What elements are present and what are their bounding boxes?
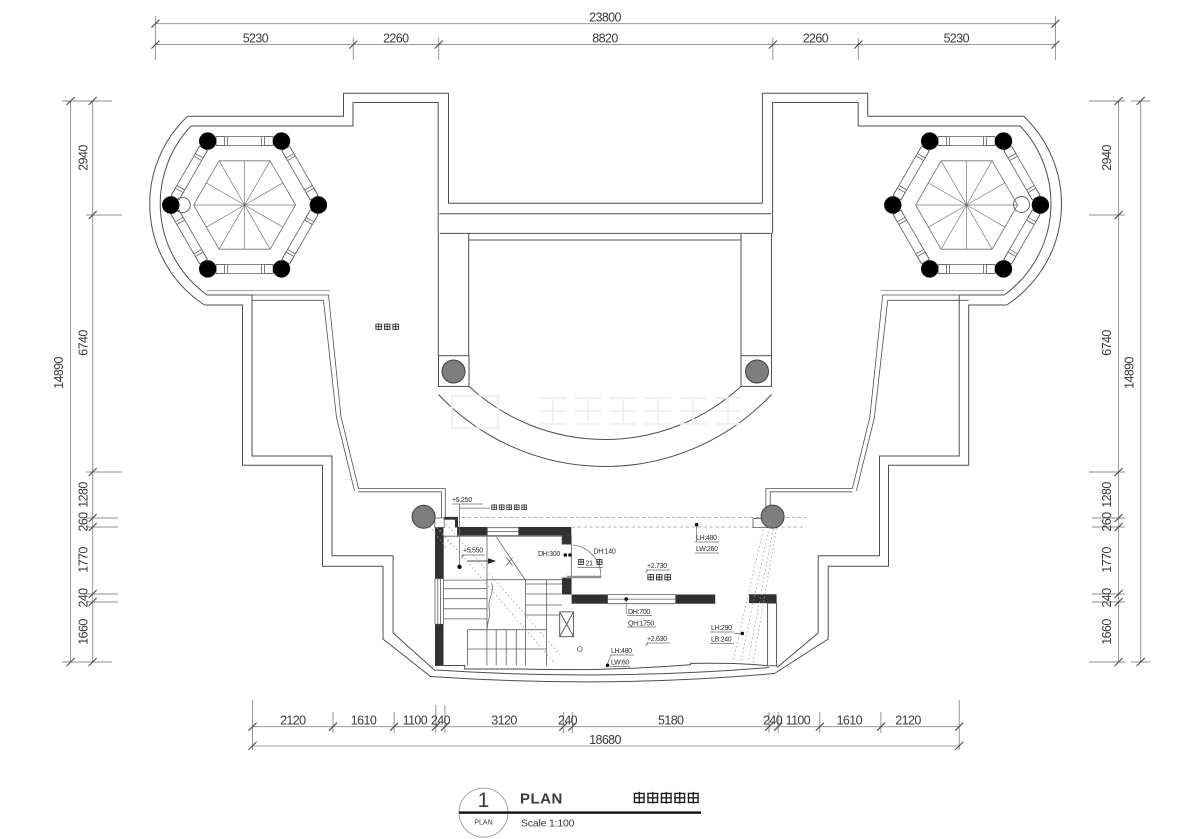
svg-text:1: 1 xyxy=(478,789,490,812)
svg-text:2120: 2120 xyxy=(280,713,306,727)
svg-text:DH:700: DH:700 xyxy=(628,609,650,616)
svg-text:PLAN: PLAN xyxy=(520,791,563,808)
svg-text:23800: 23800 xyxy=(589,11,621,25)
svg-text:240: 240 xyxy=(763,713,783,727)
svg-text:6740: 6740 xyxy=(77,330,91,356)
svg-text:LH:480: LH:480 xyxy=(696,535,717,542)
svg-text:+5.250: +5.250 xyxy=(452,497,472,504)
svg-text:1770: 1770 xyxy=(1100,547,1114,573)
svg-text:240: 240 xyxy=(558,713,578,727)
svg-text:240: 240 xyxy=(431,713,451,727)
svg-text:5230: 5230 xyxy=(243,32,269,46)
svg-text:LH:480: LH:480 xyxy=(611,648,632,655)
svg-text:21: 21 xyxy=(586,561,594,568)
svg-text:2940: 2940 xyxy=(1100,145,1114,171)
svg-text:8820: 8820 xyxy=(592,32,618,46)
svg-text:LB:240: LB:240 xyxy=(711,637,732,644)
svg-text:2260: 2260 xyxy=(383,32,409,46)
svg-text:1280: 1280 xyxy=(1100,482,1114,508)
svg-text:1100: 1100 xyxy=(786,713,811,727)
svg-text:1100: 1100 xyxy=(403,713,428,727)
svg-text:LH:290: LH:290 xyxy=(711,625,732,632)
svg-text:5230: 5230 xyxy=(944,32,970,46)
svg-text:2260: 2260 xyxy=(803,32,829,46)
svg-text:2940: 2940 xyxy=(77,145,91,171)
svg-text:240: 240 xyxy=(77,588,91,608)
svg-text:Scale 1:100: Scale 1:100 xyxy=(521,818,575,830)
svg-text:1770: 1770 xyxy=(77,547,91,573)
svg-text:PLAN: PLAN xyxy=(474,820,492,827)
svg-text:+2.730: +2.730 xyxy=(647,563,667,570)
svg-text:14890: 14890 xyxy=(1123,356,1137,388)
svg-text:6740: 6740 xyxy=(1100,330,1114,356)
svg-text:DH:140: DH:140 xyxy=(594,549,616,556)
svg-text:+5.550: +5.550 xyxy=(463,548,483,555)
svg-text:LW:260: LW:260 xyxy=(696,546,718,553)
svg-text:260: 260 xyxy=(1100,512,1114,532)
svg-text:1660: 1660 xyxy=(77,619,91,645)
svg-text:1610: 1610 xyxy=(351,713,377,727)
svg-text:260: 260 xyxy=(77,512,91,532)
svg-text:1660: 1660 xyxy=(1100,619,1114,645)
svg-text:240: 240 xyxy=(1100,588,1114,608)
svg-text:1280: 1280 xyxy=(77,482,91,508)
svg-text:3120: 3120 xyxy=(491,713,517,727)
svg-text:+2.630: +2.630 xyxy=(647,636,667,643)
svg-text:14890: 14890 xyxy=(52,356,66,388)
svg-text:2120: 2120 xyxy=(895,713,921,727)
svg-text:DH:300: DH:300 xyxy=(538,551,560,558)
svg-text:QH:1750: QH:1750 xyxy=(628,621,654,628)
svg-text:18680: 18680 xyxy=(589,733,621,747)
svg-text:LW:60: LW:60 xyxy=(611,660,629,667)
svg-text:1610: 1610 xyxy=(837,713,863,727)
svg-text:5180: 5180 xyxy=(658,713,684,727)
